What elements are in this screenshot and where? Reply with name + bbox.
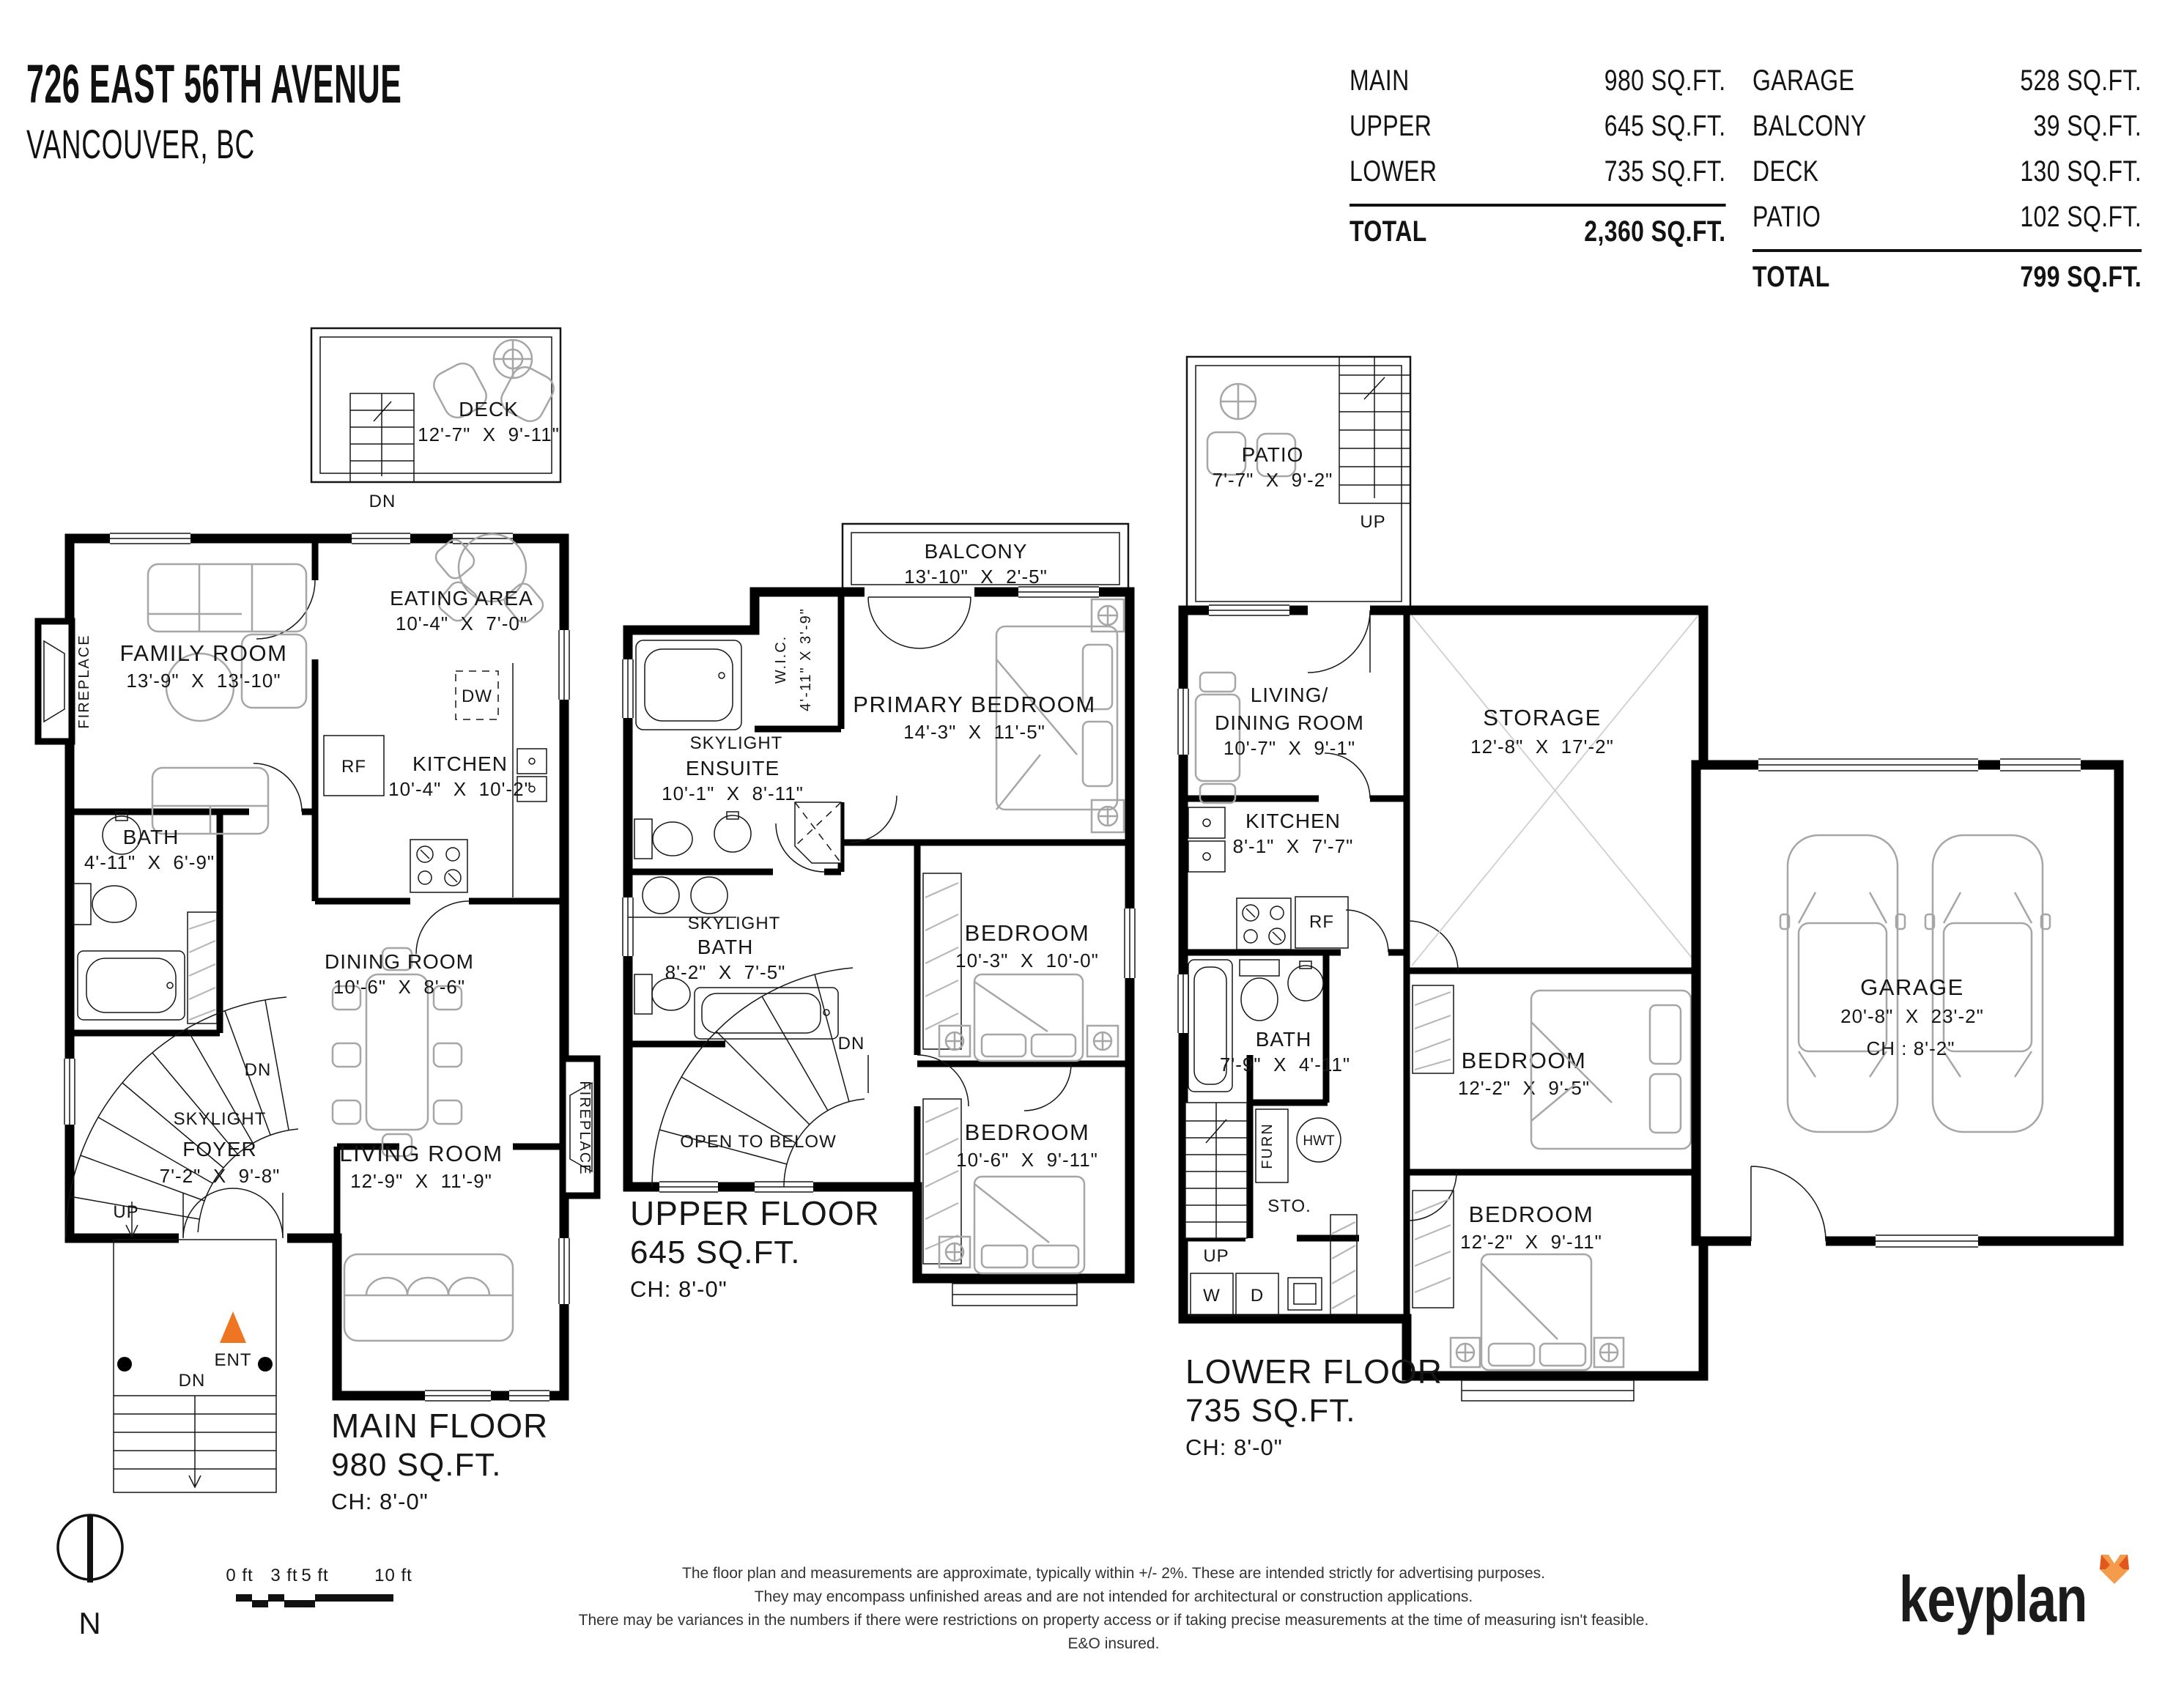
svg-text:10'-6" X 9'-11": 10'-6" X 9'-11" bbox=[956, 1149, 1098, 1171]
stairs-up-label: UP bbox=[1360, 512, 1385, 532]
room-dim: 10'-4" X 10'-2" bbox=[388, 778, 532, 800]
room-dim: 4'-11" X 6'-9" bbox=[84, 851, 215, 873]
room-dim: 10'-6" X 8'-6" bbox=[333, 976, 465, 998]
entry-porch: ENT DN bbox=[114, 1240, 276, 1492]
svg-text:10'-3" X 10'-0": 10'-3" X 10'-0" bbox=[955, 949, 1099, 971]
entry-marker bbox=[220, 1311, 246, 1343]
garage-plan: GARAGE 20'-8" X 23'-2" CH : 8'-2" bbox=[1696, 759, 2119, 1247]
staircase bbox=[1185, 1103, 1247, 1238]
svg-text:7'-7" X 9'-2": 7'-7" X 9'-2" bbox=[1213, 469, 1333, 491]
disclaimer-line: They may encompass unfinished areas and … bbox=[571, 1585, 1656, 1609]
floor-area: 645 SQ.FT. bbox=[630, 1234, 801, 1270]
stove-icon bbox=[1237, 898, 1291, 949]
porch-post bbox=[258, 1357, 273, 1371]
french-door-gap bbox=[865, 587, 974, 598]
skylight-label: SKYLIGHT bbox=[690, 733, 783, 753]
svg-text:0 ft: 0 ft bbox=[226, 1566, 253, 1585]
stairs-dn-label: DN bbox=[245, 1060, 272, 1080]
floor-title: LOWER FLOOR bbox=[1185, 1352, 1443, 1391]
room-dim: 13'-9" X 13'-10" bbox=[126, 670, 281, 692]
fridge-label: RF bbox=[341, 757, 366, 777]
svg-text:5 ft: 5 ft bbox=[301, 1566, 328, 1585]
disclaimer: The floor plan and measurements are appr… bbox=[571, 1562, 1656, 1656]
svg-text:14'-3" X 11'-5": 14'-3" X 11'-5" bbox=[903, 721, 1045, 743]
svg-text:BEDROOM: BEDROOM bbox=[1469, 1202, 1594, 1227]
dishwasher-label: DW bbox=[462, 686, 492, 706]
room-label: FOYER bbox=[182, 1138, 256, 1160]
svg-text:STORAGE: STORAGE bbox=[1483, 705, 1602, 730]
stairs-dn-label: DN bbox=[179, 1371, 206, 1391]
disclaimer-line: The floor plan and measurements are appr… bbox=[571, 1562, 1656, 1585]
upper-floor-plan: BALCONY 13'-10" X 2'-5" W.I.C. 4'-11" X … bbox=[623, 524, 1135, 1306]
svg-text:10'-1" X 8'-11": 10'-1" X 8'-11" bbox=[662, 782, 804, 804]
entry-label: ENT bbox=[215, 1350, 252, 1370]
fridge-label: RF bbox=[1309, 912, 1334, 932]
room-dim: 10'-4" X 7'-0" bbox=[396, 612, 528, 634]
svg-text:ENSUITE: ENSUITE bbox=[686, 757, 780, 780]
svg-text:7'-9" X 4'-11": 7'-9" X 4'-11" bbox=[1220, 1054, 1350, 1076]
svg-text:8'-2" X 7'-5": 8'-2" X 7'-5" bbox=[665, 961, 786, 983]
svg-text:BALCONY: BALCONY bbox=[925, 540, 1028, 563]
room-label: BATH bbox=[123, 826, 179, 848]
fireplace: FIREPLACE bbox=[563, 1059, 597, 1196]
room-label: DINING ROOM bbox=[325, 950, 474, 973]
room-label: EATING AREA bbox=[390, 587, 533, 610]
floor-area: 980 SQ.FT. bbox=[331, 1447, 502, 1483]
lower-floor-plan: PATIO 7'-7" X 9'-2" UP LIVING/ DINING RO… bbox=[1178, 357, 1709, 1460]
fox-icon bbox=[2100, 1553, 2129, 1585]
room-dim: 7'-2" X 9'-8" bbox=[160, 1165, 281, 1187]
disclaimer-line: There may be variances in the numbers if… bbox=[571, 1609, 1656, 1656]
room-label: LIVING ROOM bbox=[339, 1141, 503, 1166]
floor-ceiling-height: CH: 8'-0" bbox=[630, 1276, 728, 1302]
stairs-dn-label: DN bbox=[838, 1034, 865, 1054]
room-label: DECK bbox=[459, 398, 519, 421]
door-gap bbox=[1751, 1235, 1826, 1247]
scale-bar: 0 ft 3 ft 5 ft 10 ft bbox=[226, 1566, 412, 1607]
fireplace: FIREPLACE bbox=[38, 621, 92, 741]
washer-label: W bbox=[1203, 1286, 1221, 1306]
svg-text:BATH: BATH bbox=[697, 936, 754, 958]
furnace-label: FURN bbox=[1259, 1122, 1276, 1169]
svg-text:LIVING/: LIVING/ bbox=[1251, 684, 1329, 706]
svg-text:FIREPLACE: FIREPLACE bbox=[76, 634, 92, 728]
svg-text:8'-1" X 7'-7": 8'-1" X 7'-7" bbox=[1233, 835, 1354, 857]
entry-door-gap bbox=[179, 1232, 287, 1243]
floor-plan-canvas: DECK 12'-7" X 9'-11" DN FIREPLACE FIR bbox=[0, 0, 2184, 1688]
svg-text:4'-11" X 3'-9": 4'-11" X 3'-9" bbox=[798, 607, 814, 711]
room-dim: 12'-7" X 9'-11" bbox=[418, 423, 560, 445]
ceiling-light-icon bbox=[494, 340, 532, 378]
svg-text:PATIO: PATIO bbox=[1242, 443, 1304, 466]
svg-text:FIREPLACE: FIREPLACE bbox=[577, 1081, 593, 1175]
svg-text:13'-10" X 2'-5": 13'-10" X 2'-5" bbox=[904, 566, 1048, 588]
floor-ceiling-height: CH: 8'-0" bbox=[1185, 1435, 1283, 1460]
storage-closet-label: STO. bbox=[1267, 1196, 1311, 1216]
garage-ceiling-height: CH : 8'-2" bbox=[1867, 1037, 1955, 1059]
open-to-below-label: OPEN TO BELOW bbox=[680, 1132, 837, 1152]
room-label: GARAGE bbox=[1860, 974, 1964, 1000]
room-label: FAMILY ROOM bbox=[120, 640, 288, 666]
room-dim: 20'-8" X 23'-2" bbox=[1840, 1005, 1984, 1027]
patio: PATIO 7'-7" X 9'-2" UP bbox=[1187, 357, 1410, 610]
porch-post bbox=[117, 1357, 132, 1371]
svg-text:BATH: BATH bbox=[1256, 1028, 1312, 1051]
north-label: N bbox=[78, 1606, 101, 1640]
floor-area: 735 SQ.FT. bbox=[1185, 1393, 1356, 1429]
stove-icon bbox=[410, 840, 467, 892]
garage-outer-wall bbox=[1696, 765, 2119, 1241]
svg-text:12'-2" X 9'-11": 12'-2" X 9'-11" bbox=[1460, 1231, 1602, 1253]
dryer-label: D bbox=[1251, 1286, 1264, 1306]
room-dim: 12'-9" X 11'-9" bbox=[350, 1170, 492, 1192]
stairs-dn-label: DN bbox=[369, 492, 396, 511]
balcony: BALCONY 13'-10" X 2'-5" bbox=[843, 524, 1128, 593]
door-gap bbox=[1308, 605, 1370, 616]
svg-text:DINING ROOM: DINING ROOM bbox=[1215, 711, 1364, 734]
floor-title: UPPER FLOOR bbox=[630, 1194, 880, 1232]
svg-text:10'-7" X 9'-1": 10'-7" X 9'-1" bbox=[1224, 737, 1355, 759]
main-floor-plan: DECK 12'-7" X 9'-11" DN FIREPLACE FIR bbox=[38, 328, 597, 1514]
floor-ceiling-height: CH: 8'-0" bbox=[331, 1489, 429, 1514]
hot-water-tank-label: HWT bbox=[1303, 1133, 1335, 1149]
svg-text:BEDROOM: BEDROOM bbox=[1462, 1048, 1587, 1073]
svg-text:3 ft: 3 ft bbox=[270, 1566, 297, 1585]
svg-text:BEDROOM: BEDROOM bbox=[965, 1119, 1090, 1145]
svg-text:BEDROOM: BEDROOM bbox=[965, 920, 1090, 946]
ceiling-light-icon bbox=[1221, 384, 1256, 419]
stairs-up-label: UP bbox=[1203, 1246, 1229, 1266]
svg-text:PRIMARY BEDROOM: PRIMARY BEDROOM bbox=[853, 692, 1095, 717]
svg-text:10 ft: 10 ft bbox=[374, 1566, 412, 1585]
svg-text:W.I.C.: W.I.C. bbox=[773, 635, 789, 684]
deck: DECK 12'-7" X 9'-11" DN bbox=[311, 328, 560, 511]
north-arrow: N bbox=[58, 1515, 122, 1640]
stairs-up-label: UP bbox=[113, 1202, 138, 1222]
svg-text:KITCHEN: KITCHEN bbox=[1245, 810, 1341, 832]
skylight-label: SKYLIGHT bbox=[688, 914, 781, 933]
room-label: KITCHEN bbox=[412, 752, 508, 775]
svg-text:12'-8" X 17'-2": 12'-8" X 17'-2" bbox=[1470, 736, 1614, 758]
keyplan-logo: keyplan bbox=[1899, 1562, 2087, 1637]
skylight-label: SKYLIGHT bbox=[174, 1109, 267, 1129]
floor-title: MAIN FLOOR bbox=[331, 1407, 548, 1445]
